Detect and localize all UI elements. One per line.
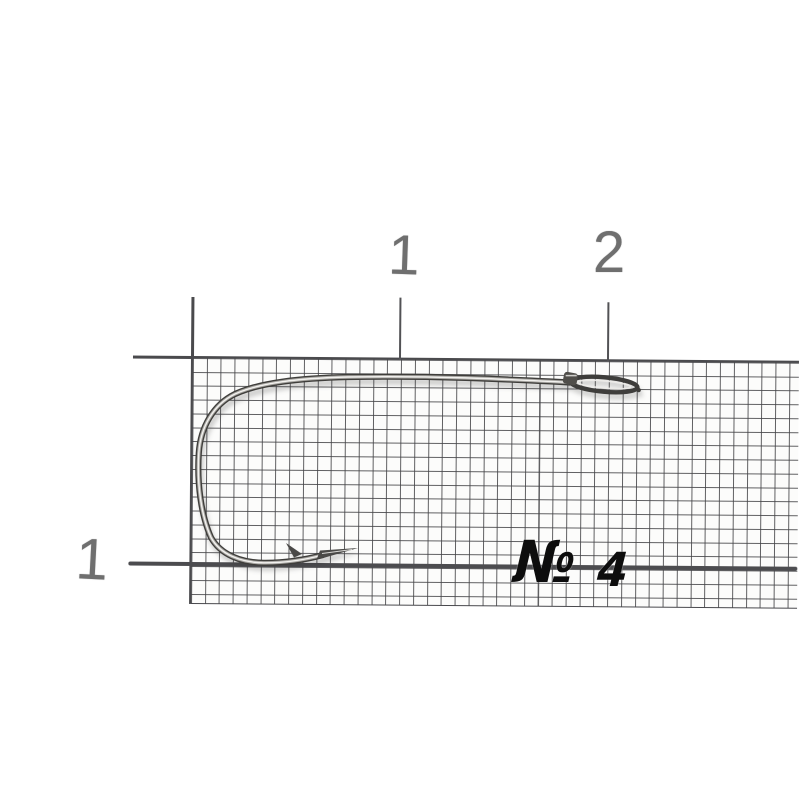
ruler-baseline-extension-left bbox=[191, 297, 194, 357]
product-photo: 1 2 1 № 4 bbox=[0, 0, 799, 800]
numero-sign: № bbox=[512, 533, 577, 591]
ruler-label-left-1: 1 bbox=[69, 530, 116, 590]
ruler-label-top-1: 1 bbox=[381, 226, 427, 284]
ruler-tick-1cm bbox=[398, 298, 401, 360]
hook-size-value: 4 bbox=[596, 547, 630, 594]
ruler-label-top-2: 2 bbox=[587, 224, 631, 282]
ruler-baseline-extension-top bbox=[133, 356, 193, 359]
millimeter-grid bbox=[189, 356, 799, 609]
graph-paper bbox=[0, 0, 799, 800]
ruler-tick-2cm bbox=[606, 302, 609, 361]
